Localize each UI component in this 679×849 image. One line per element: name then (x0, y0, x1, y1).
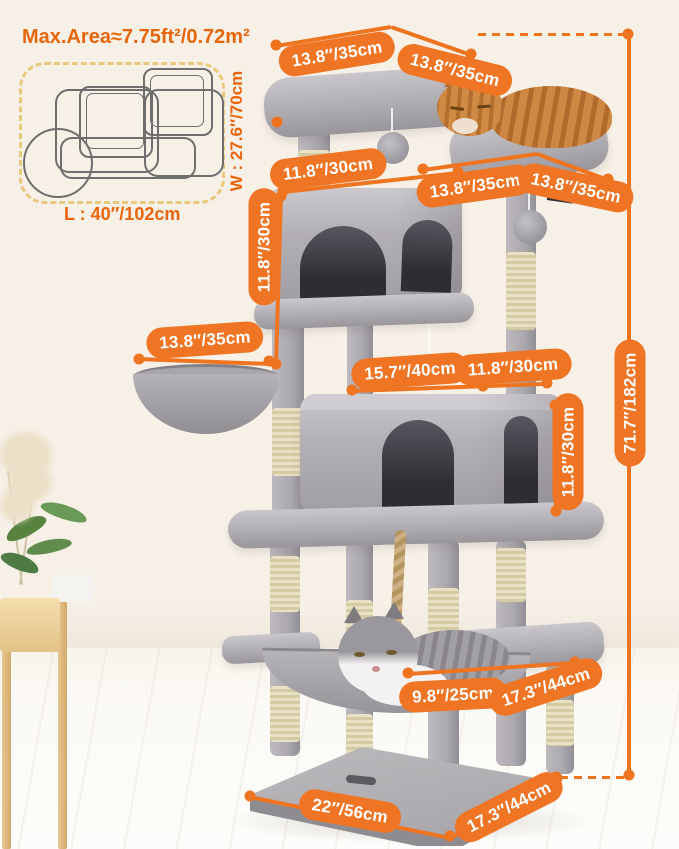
width-dimension-label: W : 27.6″/70cm (227, 71, 247, 192)
footprint-circle (23, 128, 93, 198)
dim-label-lower-condo-height: 11.8″/30cm (553, 394, 584, 511)
footprint-platform-square (79, 86, 153, 158)
dim-dash-bottom (560, 776, 624, 779)
dim-label-basket-diameter: 13.8″/35cm (145, 320, 264, 359)
dim-label-total-height: 71.7″/182cm (615, 339, 646, 466)
dim-label-lower-condo-width: 11.8″/30cm (454, 347, 572, 386)
dim-dash-top (478, 33, 623, 36)
product-dimension-diagram: Max.Area≈7.75ft²/0.72m² W : 27.6″/70cm L… (0, 0, 679, 849)
sisal-wrap (496, 548, 526, 602)
sisal-wrap (270, 556, 300, 612)
upper-condo-board (254, 292, 475, 330)
dried-plume (0, 488, 34, 522)
sisal-wrap (270, 686, 300, 742)
hanging-basket (133, 374, 279, 434)
sisal-wrap (546, 700, 574, 746)
dim-dot (272, 117, 283, 128)
plant-stand-box (0, 598, 60, 652)
dim-dot (403, 668, 414, 679)
dim-label-upper-condo-height: 11.8″/30cm (249, 189, 280, 306)
dim-dot (264, 356, 275, 367)
gray-cat-eye (354, 652, 365, 657)
orange-cat-muzzle (452, 118, 478, 134)
lower-condo-side-opening (504, 416, 538, 504)
pompom-ball (513, 210, 547, 244)
dim-dot (624, 770, 635, 781)
dim-dot (347, 385, 358, 396)
dim-dot (623, 29, 634, 40)
upper-condo-front-opening (300, 226, 386, 302)
footprint-inner-square (86, 93, 144, 149)
footprint-inner-square (150, 75, 204, 127)
dim-dot (445, 831, 456, 842)
upper-condo-side-opening (401, 219, 453, 293)
length-dimension-label: L : 40″/102cm (64, 204, 180, 225)
dim-dot (245, 791, 256, 802)
plant-leaf (39, 498, 89, 526)
gray-cat-nose (372, 666, 380, 672)
dim-dot (418, 164, 429, 175)
gray-cat-head (338, 616, 418, 694)
footprint-platform-square (143, 68, 213, 136)
lower-condo-front-opening (382, 420, 454, 512)
plant-leaf (25, 535, 73, 557)
dim-dot (271, 40, 282, 51)
sisal-wrap (506, 252, 536, 330)
max-area-label: Max.Area≈7.75ft²/0.72m² (22, 26, 250, 49)
orange-cat-body (490, 86, 612, 148)
dim-dot (134, 354, 145, 365)
footprint-dashed-box (19, 62, 225, 204)
gray-cat-eye (386, 650, 397, 655)
